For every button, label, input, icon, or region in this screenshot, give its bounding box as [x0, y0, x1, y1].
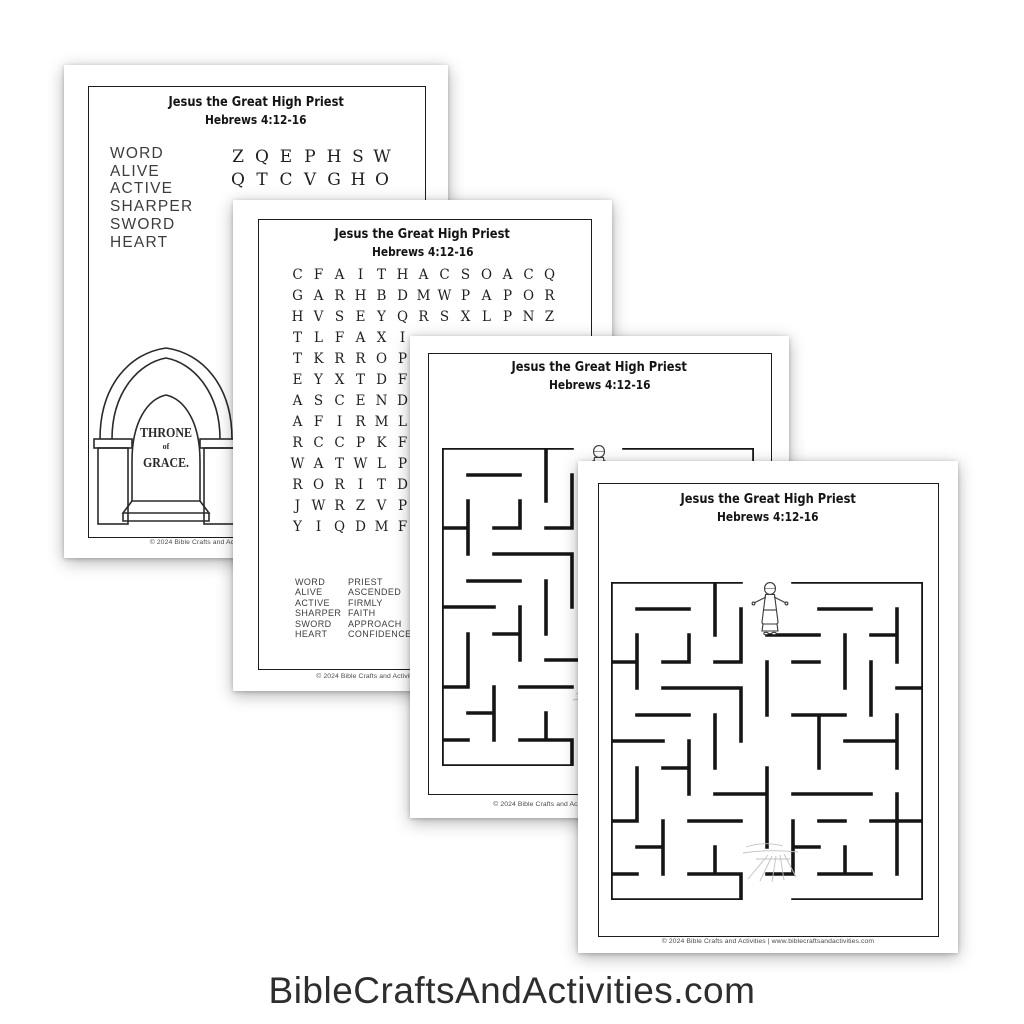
- grid-letter: T: [371, 265, 392, 286]
- page-subtitle: Hebrews 4:12-16: [64, 112, 448, 127]
- grid-letter: I: [350, 265, 371, 286]
- grid-letter: E: [274, 146, 298, 169]
- grid-letter: R: [413, 307, 434, 328]
- grid-letter: Q: [250, 146, 274, 169]
- word-list-item: SWORD: [295, 619, 341, 629]
- grid-letter: W: [370, 146, 394, 169]
- word-list-item: APPROACH: [348, 619, 412, 629]
- grid-letter: G: [287, 286, 308, 307]
- grid-letter: K: [371, 433, 392, 454]
- page-subtitle: Hebrews 4:12-16: [233, 244, 612, 259]
- word-list-item: PRIEST: [348, 577, 412, 587]
- grid-letter: A: [413, 265, 434, 286]
- word-list-item: HEART: [295, 629, 341, 639]
- page-subtitle: Hebrews 4:12-16: [578, 509, 958, 524]
- grid-letter: Y: [287, 517, 308, 538]
- word-list-item: ASCENDED: [348, 587, 412, 597]
- word-list-item: FIRMLY: [348, 598, 412, 608]
- grid-letter: R: [329, 496, 350, 517]
- grid-letter: A: [476, 286, 497, 307]
- grid-letter: T: [287, 349, 308, 370]
- word-list-item: ACTIVE: [295, 598, 341, 608]
- page-title: Jesus the Great High Priest: [233, 226, 612, 242]
- word-list-item: WORD: [295, 577, 341, 587]
- word-search-grid: ZQEPHSWQTCVGHO: [226, 146, 394, 192]
- jesus-figure: [750, 580, 790, 638]
- grid-letter: N: [518, 307, 539, 328]
- grid-row: QTCVGHO: [226, 169, 394, 192]
- grid-letter: I: [329, 412, 350, 433]
- page-footer: © 2024 Bible Crafts and Activities | www…: [578, 938, 958, 945]
- grid-letter: P: [497, 307, 518, 328]
- grid-letter: F: [308, 265, 329, 286]
- grid-letter: W: [287, 454, 308, 475]
- grid-letter: O: [308, 475, 329, 496]
- grid-letter: H: [346, 169, 370, 192]
- grid-letter: V: [371, 496, 392, 517]
- grid-letter: Y: [371, 307, 392, 328]
- grid-letter: A: [308, 286, 329, 307]
- word-list: WORDALIVEACTIVESHARPERSWORDHEART: [110, 145, 193, 251]
- grid-letter: C: [434, 265, 455, 286]
- grid-letter: G: [322, 169, 346, 192]
- word-list-item: SHARPER: [110, 198, 193, 216]
- grid-letter: A: [287, 391, 308, 412]
- grid-letter: T: [350, 370, 371, 391]
- grid-letter: W: [434, 286, 455, 307]
- grid-row: HVSEYQRSXLPNZ: [287, 307, 560, 328]
- grid-letter: Z: [226, 146, 250, 169]
- word-list-item: SWORD: [110, 216, 193, 234]
- word-list-item: WORD: [110, 145, 193, 163]
- grid-letter: C: [274, 169, 298, 192]
- grid-letter: A: [308, 454, 329, 475]
- throne-of-grace-drawing: THRONE of GRACE.: [90, 343, 242, 527]
- grid-letter: E: [350, 307, 371, 328]
- grid-letter: C: [329, 391, 350, 412]
- word-list-column-1: WORDALIVEACTIVESHARPERSWORDHEART: [295, 577, 341, 639]
- grid-letter: L: [476, 307, 497, 328]
- grid-letter: I: [308, 517, 329, 538]
- grid-letter: T: [287, 328, 308, 349]
- grid-letter: Q: [329, 517, 350, 538]
- grid-letter: P: [350, 433, 371, 454]
- grid-letter: C: [287, 265, 308, 286]
- grid-letter: V: [298, 169, 322, 192]
- grid-letter: R: [329, 349, 350, 370]
- grid-letter: S: [329, 307, 350, 328]
- grid-letter: S: [434, 307, 455, 328]
- grid-letter: O: [518, 286, 539, 307]
- grid-letter: T: [250, 169, 274, 192]
- grid-letter: A: [329, 265, 350, 286]
- grid-letter: M: [371, 517, 392, 538]
- grid-letter: H: [322, 146, 346, 169]
- grid-letter: Q: [392, 307, 413, 328]
- grid-letter: Z: [350, 496, 371, 517]
- grid-letter: W: [308, 496, 329, 517]
- grid-letter: Q: [226, 169, 250, 192]
- grid-letter: O: [371, 349, 392, 370]
- word-list-item: ACTIVE: [110, 180, 193, 198]
- grid-row: ZQEPHSW: [226, 146, 394, 169]
- grid-letter: X: [329, 370, 350, 391]
- grid-letter: X: [371, 328, 392, 349]
- grid-letter: L: [371, 454, 392, 475]
- page-title: Jesus the Great High Priest: [64, 94, 448, 110]
- grid-letter: B: [371, 286, 392, 307]
- grid-letter: C: [329, 433, 350, 454]
- grid-letter: S: [455, 265, 476, 286]
- grid-letter: E: [287, 370, 308, 391]
- grid-letter: F: [308, 412, 329, 433]
- grid-letter: I: [350, 475, 371, 496]
- word-list-item: ALIVE: [295, 587, 341, 597]
- grid-letter: Y: [308, 370, 329, 391]
- stacked-worksheets-preview: Jesus the Great High Priest Hebrews 4:12…: [0, 0, 1024, 1024]
- grid-letter: R: [329, 475, 350, 496]
- grid-letter: V: [308, 307, 329, 328]
- grid-letter: J: [287, 496, 308, 517]
- grid-letter: M: [371, 412, 392, 433]
- grid-letter: P: [497, 286, 518, 307]
- grid-letter: D: [350, 517, 371, 538]
- grid-letter: Q: [539, 265, 560, 286]
- grid-letter: R: [350, 412, 371, 433]
- grid-letter: N: [371, 391, 392, 412]
- word-list-item: ALIVE: [110, 163, 193, 181]
- grid-letter: A: [350, 328, 371, 349]
- grid-letter: X: [455, 307, 476, 328]
- worksheet-page-maze-2: Jesus the Great High Priest Hebrews 4:12…: [578, 461, 958, 953]
- grid-letter: S: [308, 391, 329, 412]
- throne-text-line3: GRACE.: [143, 456, 189, 471]
- throne-text-line1: THRONE: [140, 426, 192, 441]
- grid-letter: Z: [539, 307, 560, 328]
- grid-letter: R: [539, 286, 560, 307]
- page-subtitle: Hebrews 4:12-16: [410, 377, 789, 392]
- grid-letter: R: [287, 475, 308, 496]
- grid-letter: T: [329, 454, 350, 475]
- page-title: Jesus the Great High Priest: [410, 359, 789, 375]
- grid-letter: W: [350, 454, 371, 475]
- grid-letter: R: [350, 349, 371, 370]
- grid-letter: C: [518, 265, 539, 286]
- grid-letter: L: [308, 328, 329, 349]
- grid-letter: A: [497, 265, 518, 286]
- grid-letter: A: [287, 412, 308, 433]
- grid-letter: H: [350, 286, 371, 307]
- grid-letter: H: [392, 265, 413, 286]
- grid-letter: E: [350, 391, 371, 412]
- word-list-item: CONFIDENCE: [348, 629, 412, 639]
- grid-letter: D: [371, 370, 392, 391]
- grid-letter: P: [298, 146, 322, 169]
- website-url-text: BibleCraftsAndActivities.com: [0, 970, 1024, 1012]
- grid-letter: R: [329, 286, 350, 307]
- grid-letter: H: [287, 307, 308, 328]
- word-list-item: SHARPER: [295, 608, 341, 618]
- grid-letter: D: [392, 286, 413, 307]
- grid-letter: C: [308, 433, 329, 454]
- grid-letter: O: [370, 169, 394, 192]
- grid-letter: S: [346, 146, 370, 169]
- grid-letter: R: [287, 433, 308, 454]
- grid-letter: M: [413, 286, 434, 307]
- word-list-column-2: PRIESTASCENDEDFIRMLYFAITHAPPROACHCONFIDE…: [348, 577, 412, 639]
- grid-letter: T: [371, 475, 392, 496]
- faint-sketch: [738, 839, 808, 884]
- page-title: Jesus the Great High Priest: [578, 491, 958, 507]
- word-list-item: HEART: [110, 234, 193, 252]
- throne-text-line2: of: [163, 442, 170, 451]
- grid-letter: O: [476, 265, 497, 286]
- grid-row: CFAITHACSOACQ: [287, 265, 560, 286]
- word-list-item: FAITH: [348, 608, 412, 618]
- grid-row: GARHBDMWPAPOR: [287, 286, 560, 307]
- grid-letter: K: [308, 349, 329, 370]
- grid-letter: F: [329, 328, 350, 349]
- grid-letter: P: [455, 286, 476, 307]
